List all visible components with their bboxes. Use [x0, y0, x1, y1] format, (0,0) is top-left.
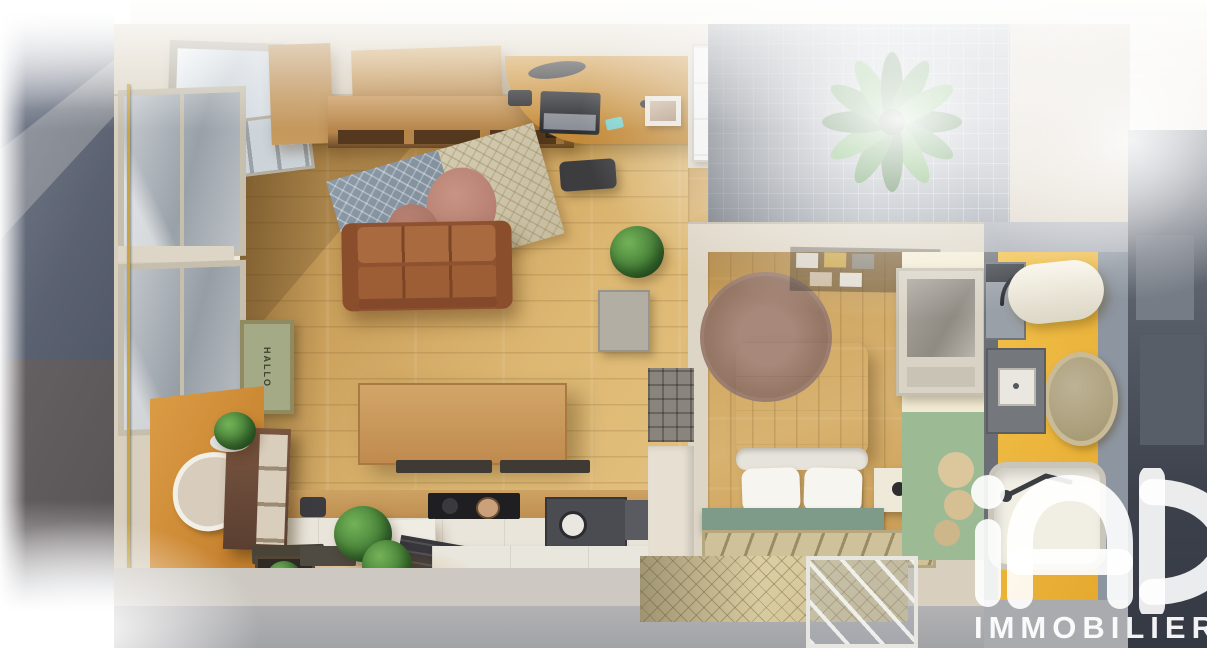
mixer: [300, 497, 326, 517]
cooktop-pot: [476, 497, 500, 519]
desk-lamp: [508, 90, 532, 106]
gold-curtain-rod: [127, 84, 130, 576]
magazine-cover: [650, 101, 676, 121]
facade-fade-top: [0, 0, 130, 110]
cactus-wall-art: [944, 490, 974, 520]
laptop-keyboard: [543, 113, 596, 131]
bathroom-bottom-floor: [984, 600, 1128, 648]
bed-pillow-right: [803, 467, 863, 513]
bathroom-top-wall: [984, 222, 1128, 256]
sofa-seat-cushions: [358, 265, 497, 299]
leather-sofa: [341, 221, 513, 312]
oven-door-window: [559, 511, 587, 539]
hall-dark-panel: [648, 368, 694, 442]
bottom-ledge-light: [114, 568, 704, 610]
vanity-mirror-glass: [907, 279, 975, 357]
balcony-floor-shadow: [640, 556, 760, 622]
window-reflection: [124, 92, 240, 254]
sofa-back-cushions: [357, 225, 496, 263]
sofa-armrest-left: [341, 223, 359, 311]
window-upper: [118, 86, 246, 260]
adjacent-building-fixture: [1140, 335, 1204, 445]
hallo-sign-text: HALLO: [262, 347, 272, 388]
floorplan-scene: HALLO: [0, 0, 1207, 648]
dining-bench: [396, 460, 492, 473]
gallery-frame: [796, 253, 818, 268]
hall-wardrobe: [648, 446, 694, 562]
sink-drain: [1013, 383, 1019, 389]
hall-plant: [610, 226, 664, 278]
entry-shelf-plant: [214, 412, 256, 450]
cabinet-drawers: [256, 434, 288, 545]
bathroom-round-mirror: [1044, 352, 1118, 446]
dining-table: [358, 383, 567, 465]
gallery-frame: [824, 252, 846, 267]
sofa-front-rail: [359, 297, 497, 309]
wood-cabinet: [268, 43, 333, 145]
cactus-wall-art: [938, 452, 974, 488]
gallery-frame: [810, 272, 832, 286]
laptop: [539, 91, 600, 135]
sink-basin: [998, 368, 1036, 406]
bed-foot-bench: [702, 508, 884, 530]
sofa-armrest-right: [495, 221, 513, 309]
vanity-mirror-desk: [896, 268, 986, 396]
window-spacer-wall: [118, 246, 234, 262]
bed-pillow-left: [741, 467, 801, 513]
dining-bench: [500, 460, 590, 473]
desk-stool: [559, 158, 617, 192]
cactus-wall-art: [934, 520, 960, 546]
gallery-frame: [852, 254, 874, 269]
magazine-file: [645, 96, 681, 126]
cooktop: [428, 493, 520, 519]
bath-faucet: [1000, 466, 1080, 506]
oven: [545, 497, 627, 549]
terrace-large-plant: [822, 52, 962, 192]
bed-crumpled-edge: [736, 448, 868, 470]
sink-vanity: [986, 348, 1046, 434]
adjacent-building-fixture: [1136, 235, 1194, 320]
gallery-frame: [840, 273, 862, 287]
bed-duvet: [736, 342, 868, 458]
hall-closet: [598, 290, 650, 352]
vanity-shelf: [907, 367, 975, 387]
cooktop-burner: [442, 498, 458, 514]
balcony-railing: [806, 556, 918, 648]
